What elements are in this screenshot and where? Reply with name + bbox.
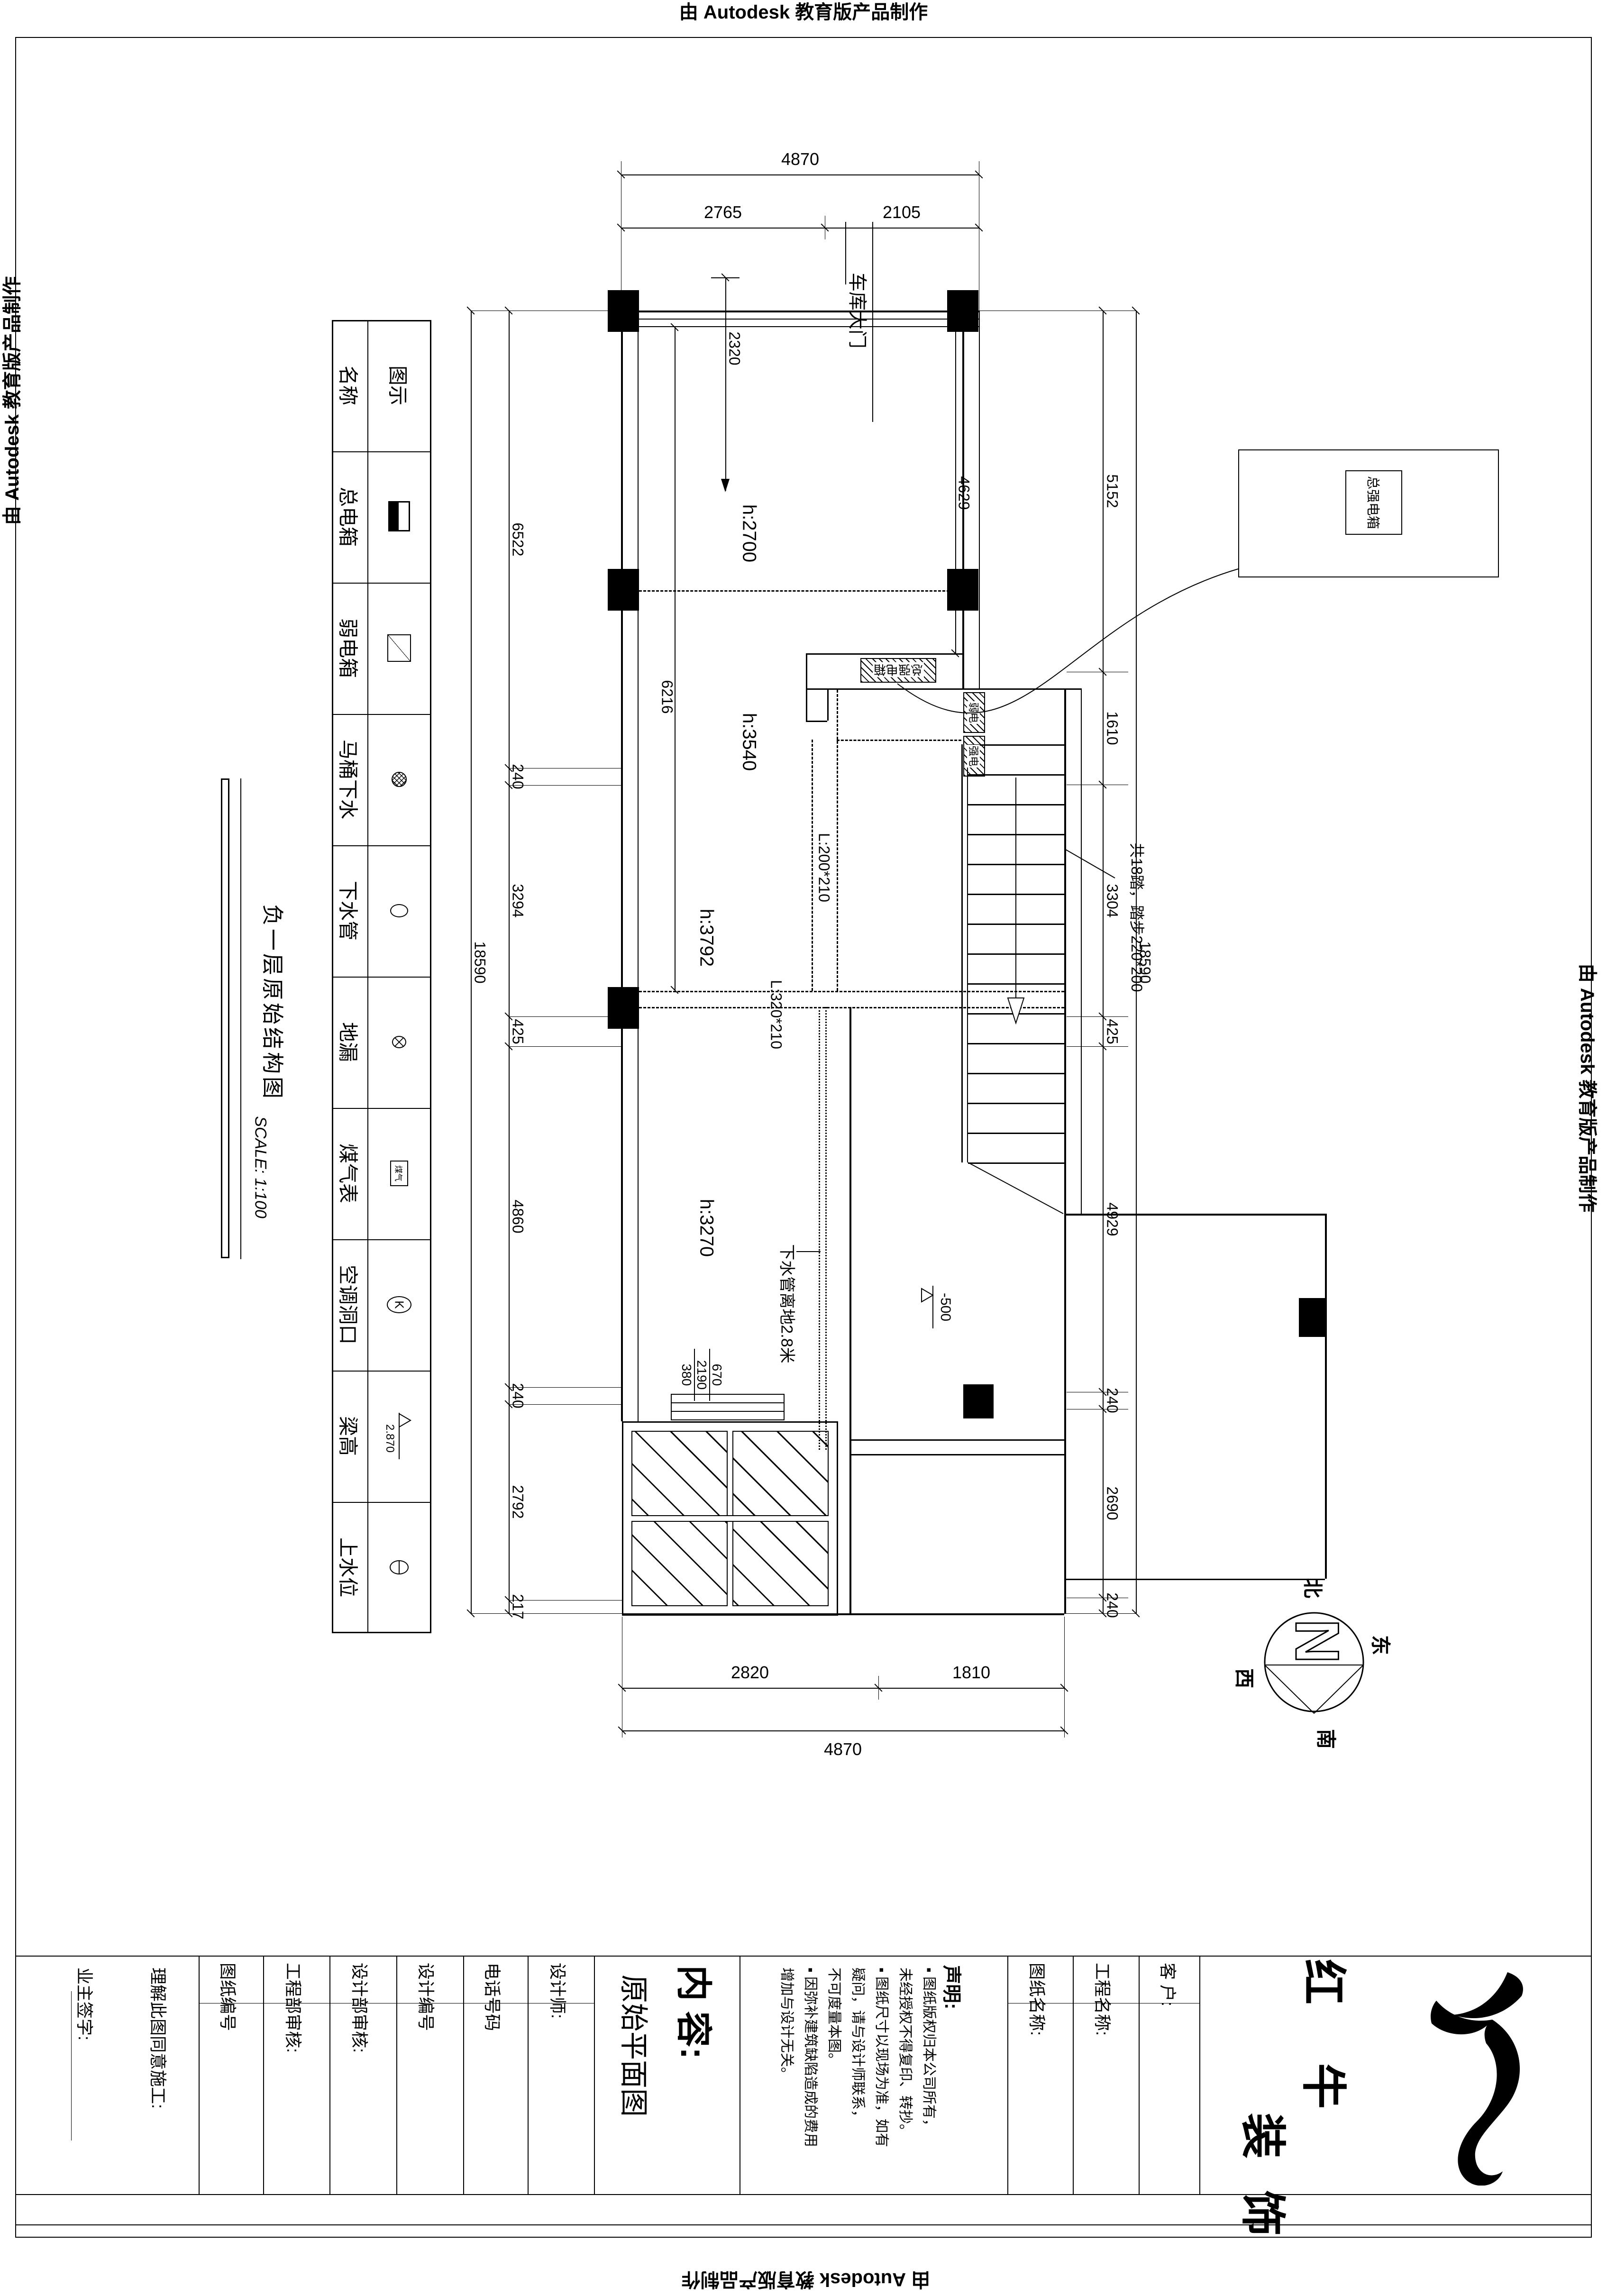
designer-label: 设计师: bbox=[547, 1963, 571, 2019]
statement-label: 声明: bbox=[940, 1965, 967, 2009]
statement-line: ▪ 图纸尺寸以现场为准，如有 bbox=[873, 1967, 894, 2147]
compass-north-label: 北 bbox=[1300, 1578, 1329, 1598]
engineering-audit-label: 工程部审核: bbox=[282, 1963, 307, 2053]
statement-line: 未经授权不得复印、转抄。 bbox=[896, 1967, 917, 2138]
plan-overlay: N bbox=[0, 0, 1607, 2296]
titleblock-divider bbox=[528, 1956, 529, 2194]
titleblock-divider bbox=[396, 1956, 397, 2194]
owner-signature-label: 业主签字: bbox=[73, 1967, 98, 2040]
titleblock-divider bbox=[329, 1956, 330, 2194]
cad-sheet: 由 Autodesk 教育版产品制作 由 Autodesk 教育版产品制作 由 … bbox=[0, 0, 1607, 2296]
compass-south-label: 南 bbox=[1313, 1729, 1342, 1749]
phone-label: 电话号码 bbox=[481, 1963, 506, 2031]
titleblock-divider bbox=[594, 1956, 595, 2194]
agree-construction-label: 理解此图同意施工: bbox=[147, 1967, 172, 2109]
stair-note-leader bbox=[1066, 850, 1115, 878]
statement-line: 不可度量本图。 bbox=[825, 1967, 846, 2067]
dim-arrowhead bbox=[721, 479, 730, 492]
stair-direction-arrow bbox=[1008, 998, 1024, 1023]
titleblock-label-divider bbox=[199, 2003, 594, 2003]
bull-logo-horn bbox=[1453, 1972, 1523, 2018]
drawing-number-label: 图纸编号 bbox=[217, 1963, 241, 2031]
level-mark-triangle bbox=[922, 1289, 933, 1302]
design-audit-label: 设计部审核: bbox=[348, 1963, 373, 2053]
titleblock-border bbox=[15, 2194, 1592, 2195]
titleblock-divider bbox=[1073, 1956, 1074, 2194]
content-label: 内 容: bbox=[671, 1965, 723, 2059]
brand-char: 饰 bbox=[1234, 2190, 1300, 2236]
titleblock-divider bbox=[1007, 1956, 1008, 2194]
statement-line: ▪ 因弥补建筑缺陷造成的费用 bbox=[802, 1967, 822, 2147]
brand-char: 牛 bbox=[1295, 2063, 1360, 2109]
compass-east-label: 东 bbox=[1368, 1635, 1397, 1655]
drawing-name-label: 图纸名称: bbox=[1026, 1963, 1050, 2036]
signature-line bbox=[71, 1991, 72, 2140]
statement-line: 增加与设计无关。 bbox=[778, 1967, 799, 2081]
brand-char: 装 bbox=[1234, 2113, 1300, 2159]
statement-line: 疑问，请与设计师联系， bbox=[849, 1967, 870, 2124]
titleblock-divider bbox=[740, 1956, 740, 2194]
bull-logo bbox=[1365, 1967, 1555, 2186]
statement-line: ▪ 图纸版权归本公司所有， bbox=[920, 1967, 941, 2133]
titleblock-divider bbox=[199, 1956, 200, 2194]
design-number-label: 设计编号 bbox=[415, 1963, 439, 2031]
content-value: 原始平面图 bbox=[615, 1975, 657, 2117]
bull-logo-body bbox=[1458, 2020, 1520, 2186]
titleblock-divider bbox=[463, 1956, 464, 2194]
stair-break-line bbox=[968, 1162, 1063, 1214]
titleblock-divider bbox=[263, 1956, 264, 2194]
client-label: 客 户: bbox=[1157, 1963, 1181, 2006]
project-name-label: 工程名称: bbox=[1091, 1963, 1116, 2036]
callout-leader-curve bbox=[897, 569, 1238, 713]
titleblock-divider bbox=[1199, 1956, 1200, 2194]
titleblock-border bbox=[15, 1956, 1592, 1957]
brand-char: 红 bbox=[1295, 1959, 1360, 2004]
titleblock-divider bbox=[1139, 1956, 1140, 2194]
compass-n: N bbox=[1283, 1619, 1352, 1664]
compass-west-label: 西 bbox=[1232, 1668, 1260, 1688]
